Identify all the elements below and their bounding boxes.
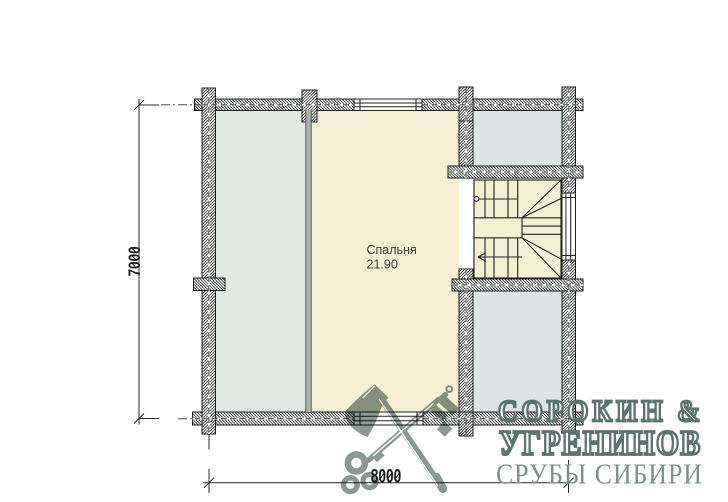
svg-text:21.90: 21.90 [367,257,398,271]
svg-text:СОРОКИН &: СОРОКИН & [498,394,704,428]
svg-text:УГРЕНИНОВ: УГРЕНИНОВ [499,424,702,463]
svg-text:Спальня: Спальня [367,243,417,257]
svg-text:СРУБЫ СИБИРИ: СРУБЫ СИБИРИ [496,459,703,490]
